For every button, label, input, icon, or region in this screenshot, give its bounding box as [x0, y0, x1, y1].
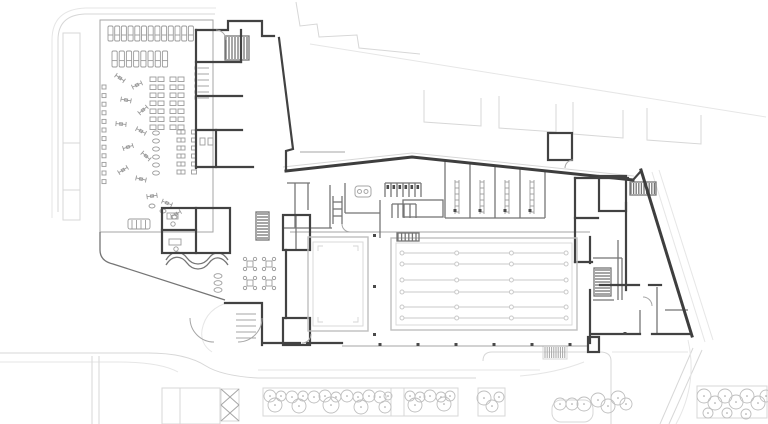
cardio-machine: [134, 51, 139, 67]
learner-pool: [308, 237, 368, 331]
site-context-layer: [0, 2, 766, 424]
pools: [308, 233, 577, 331]
walls-thick: [162, 21, 692, 352]
floor-plan-drawing: [0, 0, 768, 424]
cardio-machine: [112, 51, 117, 67]
cardio-machine: [175, 26, 180, 41]
cardio-machine: [108, 26, 113, 41]
cardio-machine: [188, 26, 193, 41]
floor-plan-page: [0, 0, 768, 424]
cardio-machine: [155, 26, 160, 41]
cardio-machine: [162, 51, 167, 67]
cardio-machine: [128, 26, 133, 41]
building-light-walls: [100, 20, 618, 346]
cardio-machine: [119, 51, 124, 67]
cardio-machine: [148, 51, 153, 67]
landscape-layer: [221, 346, 768, 422]
fixtures-dark: [373, 185, 627, 346]
gym-equipment: [102, 26, 209, 229]
cardio-machine: [155, 51, 160, 67]
cardio-machine: [142, 26, 147, 41]
cardio-machine: [182, 26, 187, 41]
cardio-machine: [135, 26, 140, 41]
partitions-medium: [166, 36, 688, 338]
cardio-machine: [141, 51, 146, 67]
cardio-machine: [168, 26, 173, 41]
cardio-machine: [162, 26, 167, 41]
cardio-machine: [115, 26, 120, 41]
cardio-machine: [126, 51, 131, 67]
cardio-machine: [121, 26, 126, 41]
cardio-machine: [148, 26, 153, 41]
main-pool: [391, 238, 577, 330]
